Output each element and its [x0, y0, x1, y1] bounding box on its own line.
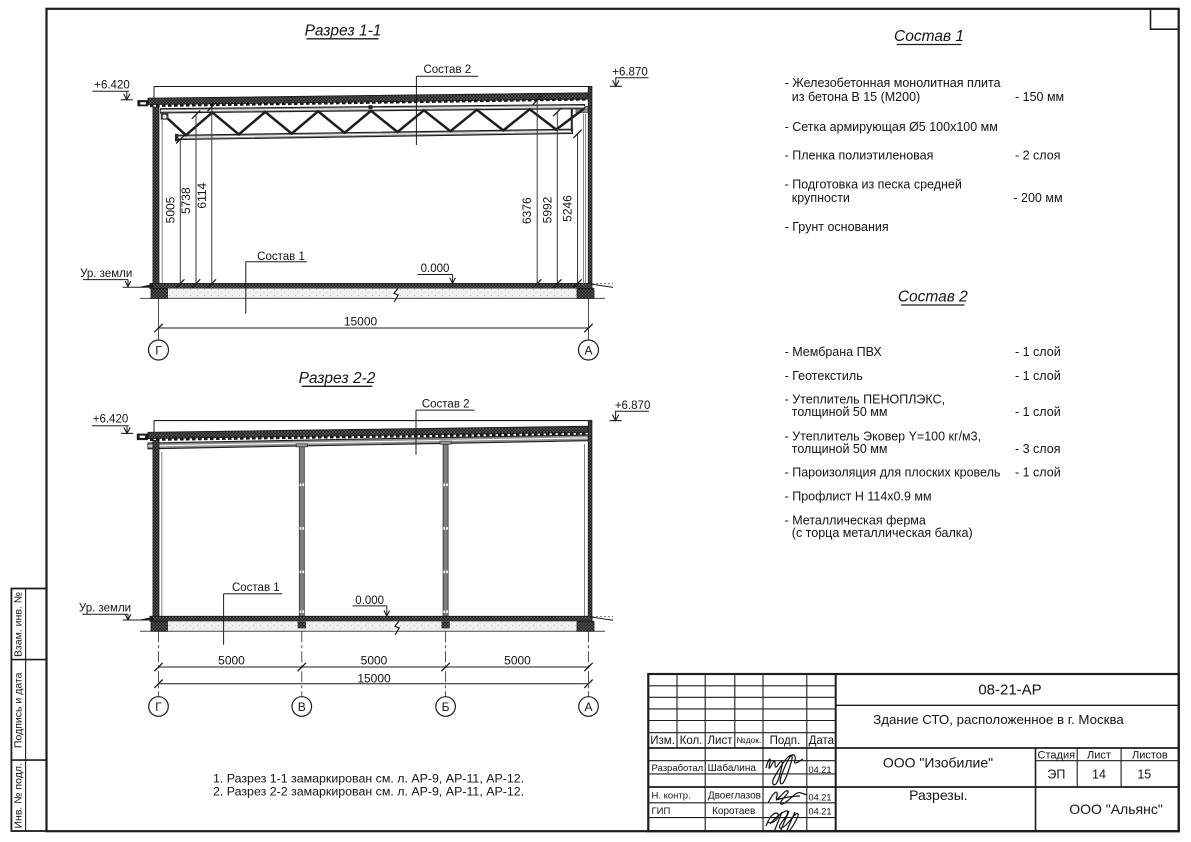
svg-text:Состав 1: Состав 1 — [232, 582, 280, 594]
svg-text:5005: 5005 — [164, 196, 178, 223]
svg-text:- Пленка полиэтиленовая: - Пленка полиэтиленовая — [785, 149, 934, 163]
svg-text:- Мембрана ПВХ: - Мембрана ПВХ — [785, 345, 883, 359]
svg-text:2. Разрез 2-2 замаркирован см.: 2. Разрез 2-2 замаркирован см. л. АР-9, … — [213, 784, 524, 798]
svg-text:Состав 1: Состав 1 — [257, 251, 305, 263]
svg-text:- Подготовка из песка средней: - Подготовка из песка средней — [785, 178, 962, 192]
svg-text:+6.870: +6.870 — [612, 66, 648, 78]
svg-text:+6.870: +6.870 — [615, 400, 651, 412]
svg-text:Состав 2: Состав 2 — [422, 399, 470, 411]
svg-text:Кол.: Кол. — [680, 735, 703, 747]
svg-text:Ур. земли: Ур. земли — [79, 603, 131, 615]
svg-text:- Грунт основания: - Грунт основания — [785, 220, 889, 234]
svg-text:Изм.: Изм. — [650, 735, 675, 747]
svg-text:Разрез 2-2: Разрез 2-2 — [299, 370, 376, 387]
svg-text:6114: 6114 — [195, 182, 209, 208]
svg-text:6376: 6376 — [520, 197, 534, 224]
svg-text:- 1 слой: - 1 слой — [1015, 466, 1061, 480]
svg-text:08-21-АР: 08-21-АР — [978, 682, 1041, 699]
svg-text:ООО "Альянс": ООО "Альянс" — [1069, 801, 1163, 817]
svg-text:Лист: Лист — [1087, 750, 1111, 762]
svg-text:1. Разрез 1-1 замаркирован см.: 1. Разрез 1-1 замаркирован см. л. АР-9, … — [213, 771, 524, 785]
svg-text:Двоеглазов: Двоеглазов — [708, 790, 761, 801]
svg-text:04.21: 04.21 — [809, 765, 832, 775]
svg-text:15000: 15000 — [357, 671, 391, 685]
svg-text:+6.420: +6.420 — [94, 80, 130, 92]
svg-text:- Пароизоляция для плоских кро: - Пароизоляция для плоских кровель — [785, 466, 1001, 480]
svg-text:ООО "Изобилие": ООО "Изобилие" — [883, 755, 993, 771]
svg-text:+6.420: +6.420 — [93, 413, 129, 425]
svg-text:15000: 15000 — [344, 315, 378, 329]
svg-text:- 3 слоя: - 3 слоя — [1015, 442, 1060, 456]
svg-text:5000: 5000 — [361, 653, 388, 667]
svg-text:0.000: 0.000 — [421, 263, 450, 275]
svg-text:Инв. № подл.: Инв. № подл. — [13, 763, 25, 828]
svg-text:Разрез 1-1: Разрез 1-1 — [305, 23, 382, 40]
svg-text:Состав 2: Состав 2 — [423, 64, 471, 76]
svg-text:- 1 слой: - 1 слой — [1015, 369, 1061, 383]
svg-text:крупности: крупности — [792, 191, 850, 205]
svg-text:5000: 5000 — [218, 653, 245, 667]
svg-text:Разработал: Разработал — [652, 763, 704, 774]
svg-text:В: В — [298, 700, 306, 714]
svg-text:Шабалина: Шабалина — [708, 762, 757, 774]
svg-text:Г: Г — [155, 343, 162, 357]
svg-text:Листов: Листов — [1132, 750, 1168, 762]
svg-text:- 150 мм: - 150 мм — [1015, 90, 1064, 104]
svg-text:- 200 мм: - 200 мм — [1013, 191, 1062, 205]
svg-text:из бетона В 15 (М200): из бетона В 15 (М200) — [792, 90, 920, 104]
svg-text:Состав 2: Состав 2 — [898, 288, 968, 305]
svg-text:Подпись и дата: Подпись и дата — [13, 672, 25, 748]
svg-text:А: А — [584, 343, 592, 357]
svg-text:- 2 слоя: - 2 слоя — [1015, 149, 1060, 163]
svg-text:Н. контр.: Н. контр. — [652, 790, 691, 801]
svg-text:5738: 5738 — [179, 187, 193, 214]
svg-text:14: 14 — [1092, 767, 1106, 781]
svg-text:Взам. инв. №: Взам. инв. № — [13, 592, 25, 657]
svg-text:- Железобетонная монолитная п: - Железобетонная монолитная плита — [785, 76, 1001, 90]
svg-text:04.21: 04.21 — [809, 793, 832, 803]
svg-text:№док.: №док. — [736, 735, 761, 745]
svg-text:- Геотекстиль: - Геотекстиль — [785, 369, 863, 383]
svg-text:5246: 5246 — [561, 195, 575, 222]
svg-text:04.21: 04.21 — [809, 807, 832, 817]
svg-text:- 1 слой: - 1 слой — [1015, 345, 1061, 359]
svg-text:Ур. земли: Ур. земли — [80, 268, 132, 280]
svg-text:толщиной 50 мм: толщиной 50 мм — [792, 405, 888, 419]
svg-text:ЭП: ЭП — [1047, 767, 1065, 781]
svg-text:0.000: 0.000 — [355, 595, 384, 607]
svg-text:Подп.: Подп. — [770, 735, 801, 747]
svg-text:Стадия: Стадия — [1038, 750, 1076, 762]
svg-text:- Профлист Н 114х0.9 мм: - Профлист Н 114х0.9 мм — [785, 490, 932, 504]
svg-text:Разрезы.: Разрезы. — [909, 787, 968, 803]
svg-text:15: 15 — [1137, 767, 1151, 781]
svg-text:Состав 1: Состав 1 — [894, 28, 964, 45]
svg-text:5000: 5000 — [504, 653, 531, 667]
svg-text:- Сетка армирующая Ø5 100х100: - Сетка армирующая Ø5 100х100 мм — [785, 120, 998, 134]
svg-text:ГИП: ГИП — [652, 806, 671, 817]
svg-text:- 1 слой: - 1 слой — [1015, 405, 1061, 419]
svg-text:Б: Б — [442, 700, 450, 714]
svg-text:Коротаев: Коротаев — [712, 806, 755, 817]
svg-text:Дата: Дата — [809, 735, 835, 747]
svg-text:А: А — [584, 700, 592, 714]
svg-text:толщиной 50 мм: толщиной 50 мм — [792, 442, 888, 456]
svg-text:Г: Г — [155, 700, 162, 714]
svg-text:5992: 5992 — [540, 196, 554, 223]
svg-text:(с торца металлическая балка): (с торца металлическая балка) — [792, 526, 973, 540]
svg-text:Здание СТО, расположенное в г.: Здание СТО, расположенное в г. Москва — [873, 712, 1124, 727]
svg-text:Лист: Лист — [708, 735, 734, 747]
